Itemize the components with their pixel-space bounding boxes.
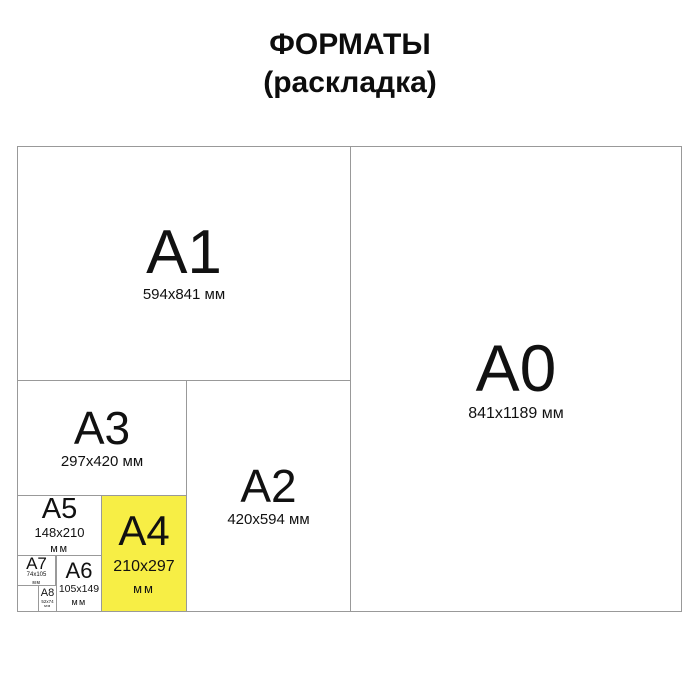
format-dims-a3: 297x420 мм	[61, 453, 143, 472]
paper-formats-poster: ФОРМАТЫ (раскладка) A1 594x841 мм A0 841…	[0, 0, 700, 700]
format-unit-a6: мм	[71, 597, 86, 608]
format-label-a0: A0	[476, 335, 557, 401]
format-dims-a4: 210x297	[113, 557, 174, 577]
format-box-a2: A2 420x594 мм	[186, 381, 351, 611]
format-box-a6: A6 105x149 мм	[56, 556, 101, 611]
format-dims-a5: 148x210	[35, 525, 85, 541]
format-dims-a1: 594x841 мм	[143, 286, 225, 305]
format-label-a3: A3	[74, 405, 130, 451]
format-label-a1: A1	[146, 222, 222, 284]
page-title: ФОРМАТЫ (раскладка)	[0, 26, 700, 102]
format-label-a2: A2	[240, 463, 296, 509]
format-box-a7: A7 74x105 мм	[18, 556, 56, 586]
format-box-a8: A8 52x74 мм	[38, 586, 56, 611]
page-title-line2: (раскладка)	[0, 64, 700, 102]
format-unit-a7: мм	[32, 580, 40, 586]
paper-format-layout-diagram: A1 594x841 мм A0 841x1189 мм A3 297x420 …	[17, 146, 682, 612]
format-dims-a6: 105x149	[59, 583, 99, 596]
format-label-a4: A4	[118, 510, 169, 552]
format-dims-a7: 74x105	[27, 572, 47, 580]
format-box-a5: A5 148x210 мм	[18, 496, 101, 556]
format-box-a1: A1 594x841 мм	[18, 147, 351, 381]
format-label-a7: A7	[26, 555, 47, 572]
format-label-a5: A5	[42, 495, 77, 524]
format-unit-a4: мм	[133, 581, 155, 597]
page-title-line1: ФОРМАТЫ	[0, 26, 700, 64]
format-label-a8: A8	[41, 588, 54, 599]
format-label-a6: A6	[66, 560, 93, 582]
format-box-a0: A0 841x1189 мм	[351, 147, 681, 611]
format-dims-a0: 841x1189 мм	[468, 404, 564, 424]
format-unit-a5: мм	[50, 543, 68, 556]
format-box-a3: A3 297x420 мм	[18, 381, 186, 496]
format-dims-a2: 420x594 мм	[227, 511, 309, 530]
format-box-a4-highlighted: A4 210x297 мм	[101, 496, 186, 611]
format-unit-a8: мм	[44, 604, 51, 609]
